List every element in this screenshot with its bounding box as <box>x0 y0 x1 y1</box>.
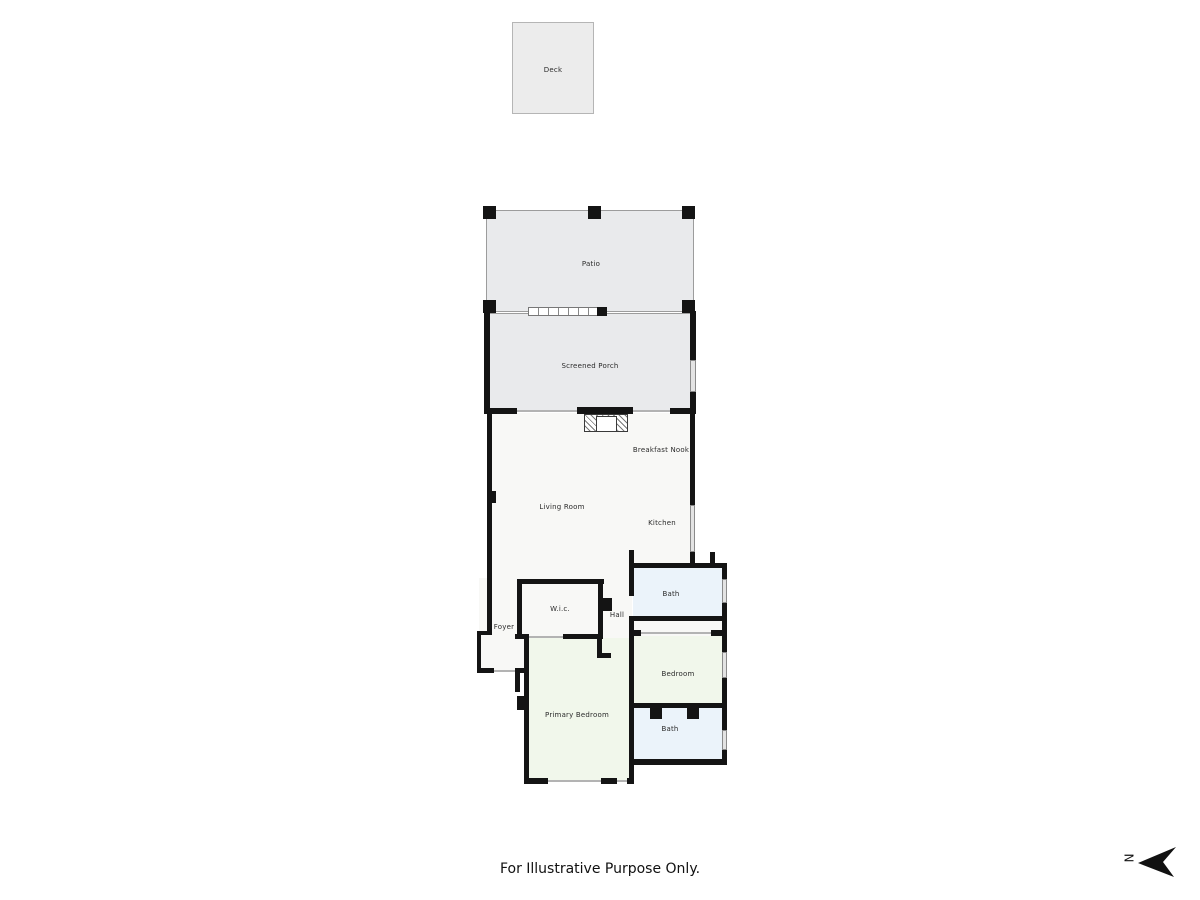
wall-segment <box>484 311 490 412</box>
window <box>690 360 696 392</box>
north-arrow-icon <box>1136 845 1178 879</box>
room-label-kitchen: Kitchen <box>648 519 676 527</box>
wall-segment <box>477 668 494 673</box>
wall-segment <box>487 410 492 635</box>
room-label-patio: Patio <box>582 260 600 268</box>
door-jamb <box>603 598 612 611</box>
window-line <box>548 780 601 782</box>
fireplace-firebox <box>596 416 617 432</box>
door-opening-line <box>641 632 711 634</box>
wall-segment <box>517 579 522 637</box>
room-label-breakfast-nook: Breakfast Nook <box>633 446 689 454</box>
room-label-foyer: Foyer <box>494 623 514 631</box>
wall-segment <box>690 410 695 505</box>
wall-segment <box>601 778 617 784</box>
wall-segment <box>710 552 715 563</box>
room-label-screened-porch: Screened Porch <box>561 362 618 370</box>
porch-screen-window <box>528 307 598 316</box>
primary-bedroom-room <box>528 638 630 780</box>
patio-post <box>588 206 601 219</box>
window <box>722 579 727 603</box>
window <box>722 730 727 750</box>
room-label-bath-upper: Bath <box>662 590 679 598</box>
patio-post <box>682 206 695 219</box>
door-opening-line <box>494 670 515 672</box>
wall-segment <box>515 668 520 692</box>
door-jamb <box>487 491 496 503</box>
wall-segment <box>629 616 727 621</box>
wall-segment <box>629 703 727 708</box>
room-label-bath-lower: Bath <box>661 725 678 733</box>
room-label-wic: W.i.c. <box>550 605 570 613</box>
fireplace-mantel <box>577 407 633 414</box>
wall-segment <box>629 759 727 765</box>
floorplan-canvas: Deck Patio Screened Porch Breakfast Nook… <box>0 0 1200 900</box>
wall-segment <box>517 579 604 584</box>
window <box>722 652 727 678</box>
room-label-primary-bedroom: Primary Bedroom <box>545 711 609 719</box>
wall-segment <box>629 563 727 568</box>
door-jamb <box>650 708 662 719</box>
wall-segment <box>597 653 611 658</box>
bath-lower-room <box>633 706 723 762</box>
room-label-hall: Hall <box>610 611 624 619</box>
patio-post <box>483 206 496 219</box>
door-jamb <box>687 708 699 719</box>
room-label-bedroom: Bedroom <box>661 670 694 678</box>
door-opening-line <box>527 636 563 638</box>
wall-segment <box>629 550 634 596</box>
wall-segment <box>524 778 548 784</box>
wall-thin-line <box>632 410 670 412</box>
disclaimer-text: For Illustrative Purpose Only. <box>500 861 700 877</box>
wall-thin-line <box>517 410 580 412</box>
room-label-living-room: Living Room <box>539 503 584 511</box>
room-label-deck: Deck <box>544 66 562 74</box>
wall-segment <box>597 307 607 316</box>
living-area-floor <box>490 413 690 578</box>
window <box>690 505 695 552</box>
door-jamb <box>517 696 525 710</box>
window-line <box>617 780 627 782</box>
wall-segment <box>627 778 634 784</box>
compass-north-label: N <box>1121 854 1135 863</box>
wall-segment <box>477 631 481 672</box>
